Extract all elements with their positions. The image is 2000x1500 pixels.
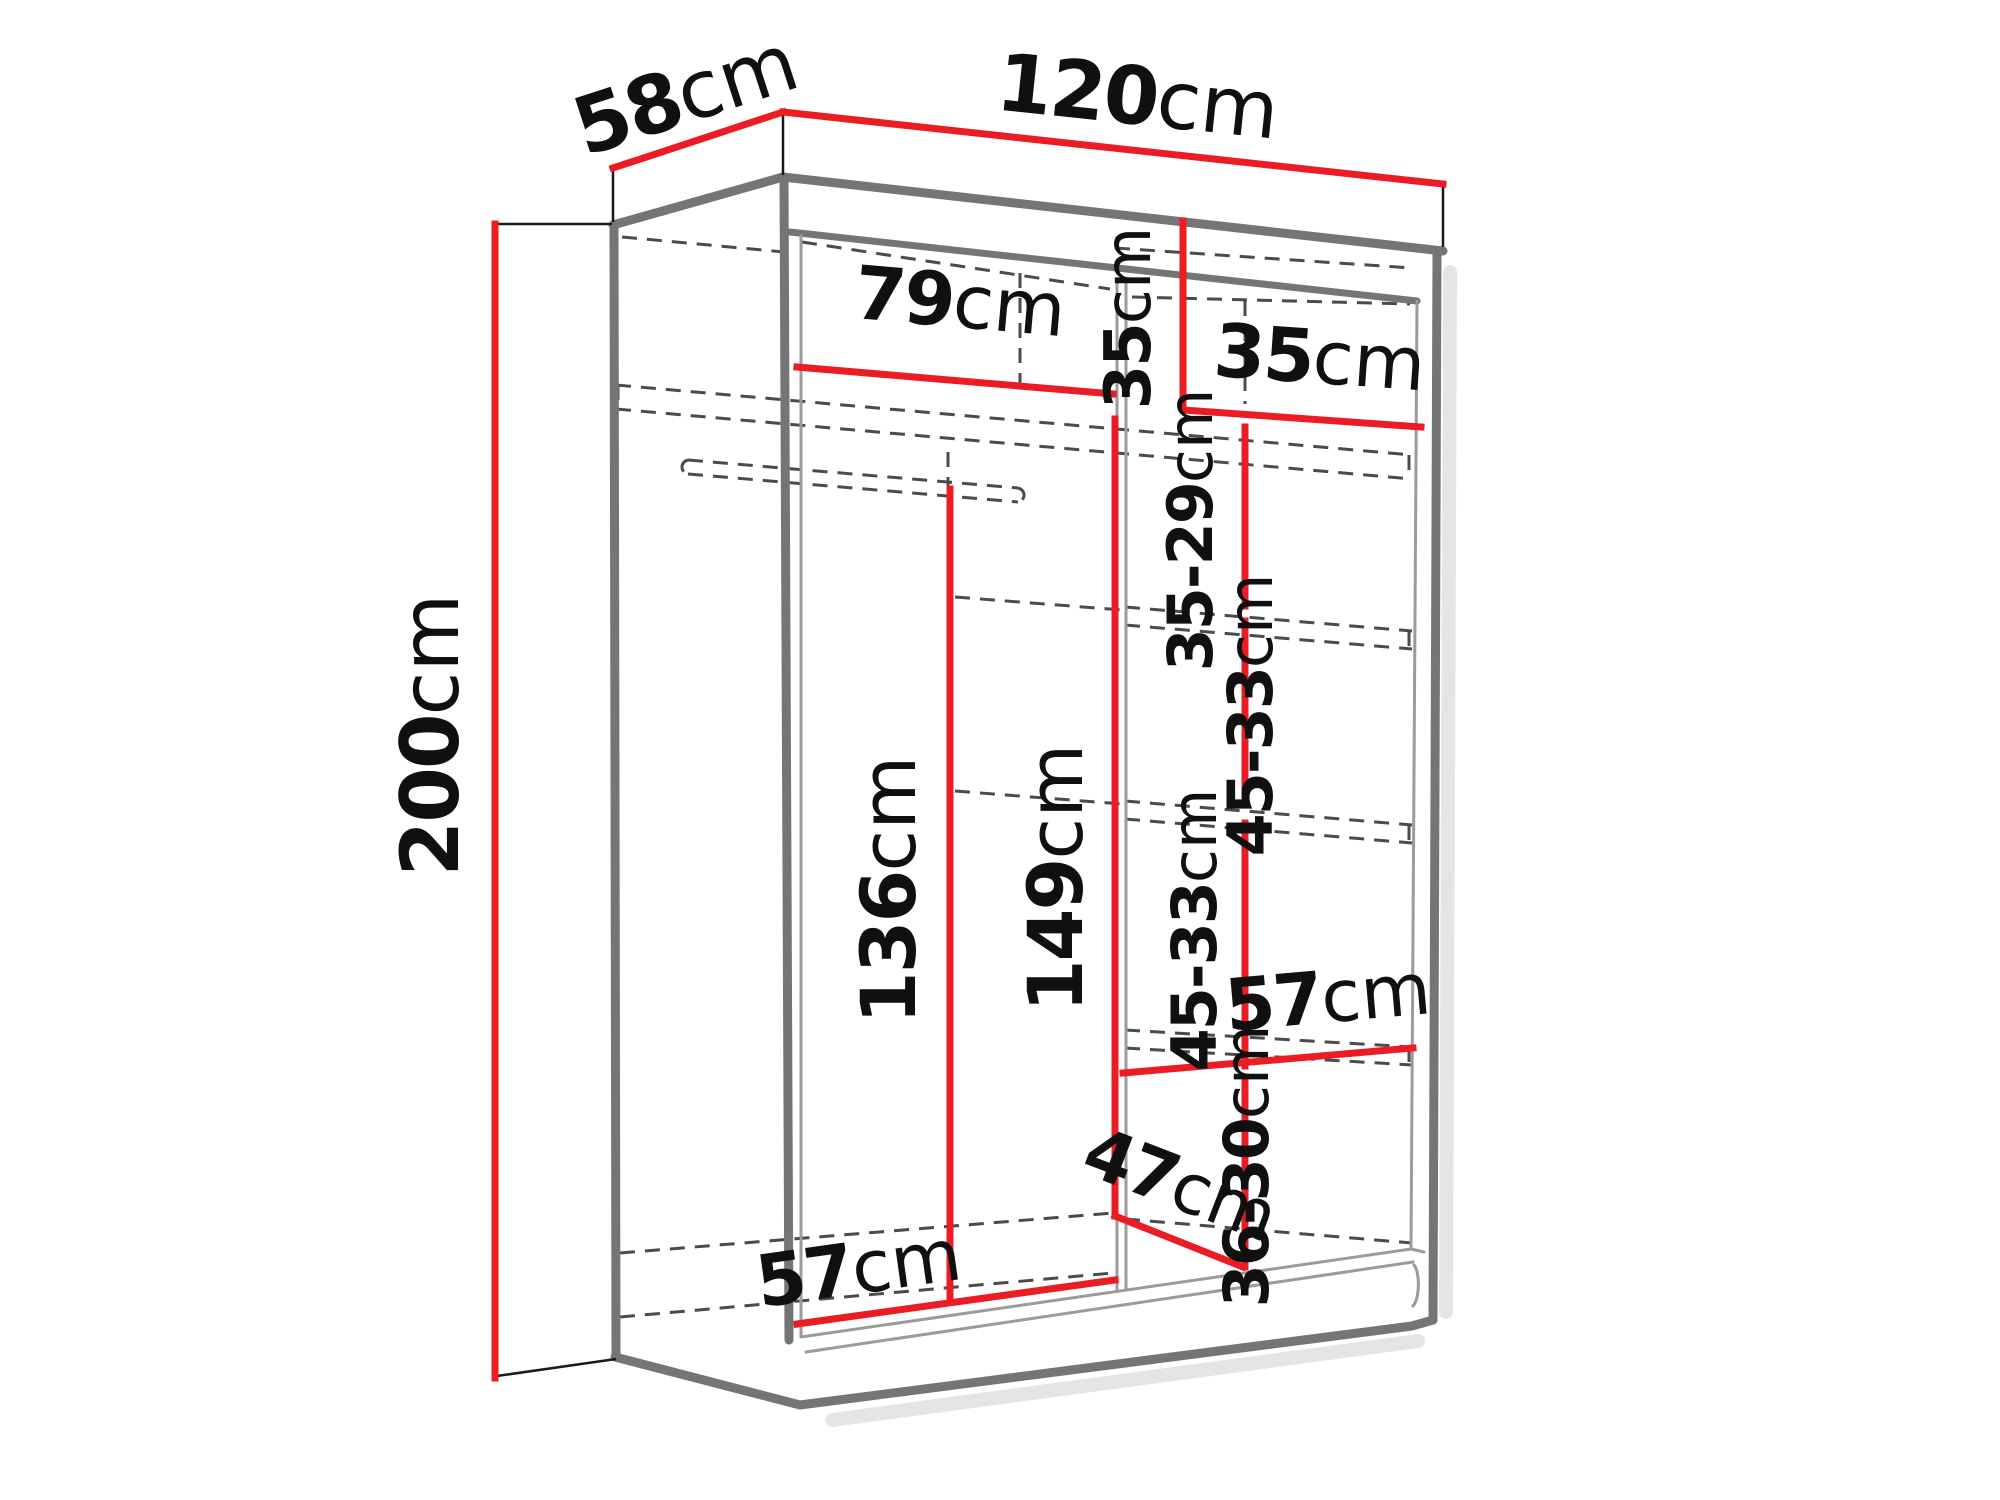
dimension-label-depth-58: 58cm	[562, 15, 809, 174]
dimension-unit: cm	[1310, 315, 1429, 409]
dimension-line-inner-width-79	[797, 367, 1113, 394]
dimension-unit: cm	[1092, 227, 1166, 325]
dimension-unit: cm	[1158, 789, 1231, 883]
dimension-unit: cm	[664, 15, 809, 141]
dimension-unit: cm	[1154, 389, 1227, 483]
dimension-value: 35	[1211, 308, 1316, 401]
dimension-unit: cm	[1210, 1025, 1283, 1119]
dimension-label-height-200: 200cm	[384, 594, 477, 877]
dimension-label-inner-width-79: 79cm	[851, 250, 1069, 354]
plinth-right-cap	[1411, 1249, 1424, 1306]
left-front-edge	[784, 179, 789, 1340]
dimension-value: 136	[844, 872, 933, 1025]
left-back-edge	[614, 226, 616, 1357]
dimension-unit: cm	[1214, 574, 1287, 668]
dimension-value: 57	[751, 1228, 858, 1325]
dimension-label-top-shelf-height-35: 35cm	[1092, 227, 1166, 410]
dimension-label-top-shelf-width-35: 35cm	[1211, 308, 1428, 409]
diagram-canvas: 58cm120cm200cm79cm35cm35cm35-29cm45-33cm…	[0, 0, 2000, 1500]
dimension-unit: cm	[384, 594, 477, 716]
dimension-unit: cm	[1011, 744, 1100, 860]
dimension-label-hanging-height-136: 136cm	[844, 756, 933, 1024]
dimension-unit: cm	[846, 1212, 966, 1310]
dimension-unit: cm	[1317, 946, 1434, 1039]
wardrobe-diagram: 58cm120cm200cm79cm35cm35cm35-29cm45-33cm…	[0, 0, 2000, 1500]
inner-right-edge	[1411, 301, 1417, 1249]
dimension-value: 120	[992, 36, 1162, 145]
dimension-value: 200	[384, 715, 477, 876]
top-left-edge	[613, 177, 783, 225]
dimension-labels: 58cm120cm200cm79cm35cm35cm35-29cm45-33cm…	[384, 15, 1434, 1324]
hanging-rod	[682, 452, 1024, 502]
dimension-unit: cm	[1152, 52, 1283, 157]
dimension-unit: cm	[844, 756, 933, 872]
dimension-unit: cm	[950, 259, 1070, 355]
dimension-value: 79	[851, 250, 957, 344]
right-front-edge	[1433, 253, 1437, 1320]
dimension-label-section-height-149: 149cm	[1011, 744, 1100, 1012]
dimension-value: 149	[1011, 860, 1100, 1013]
